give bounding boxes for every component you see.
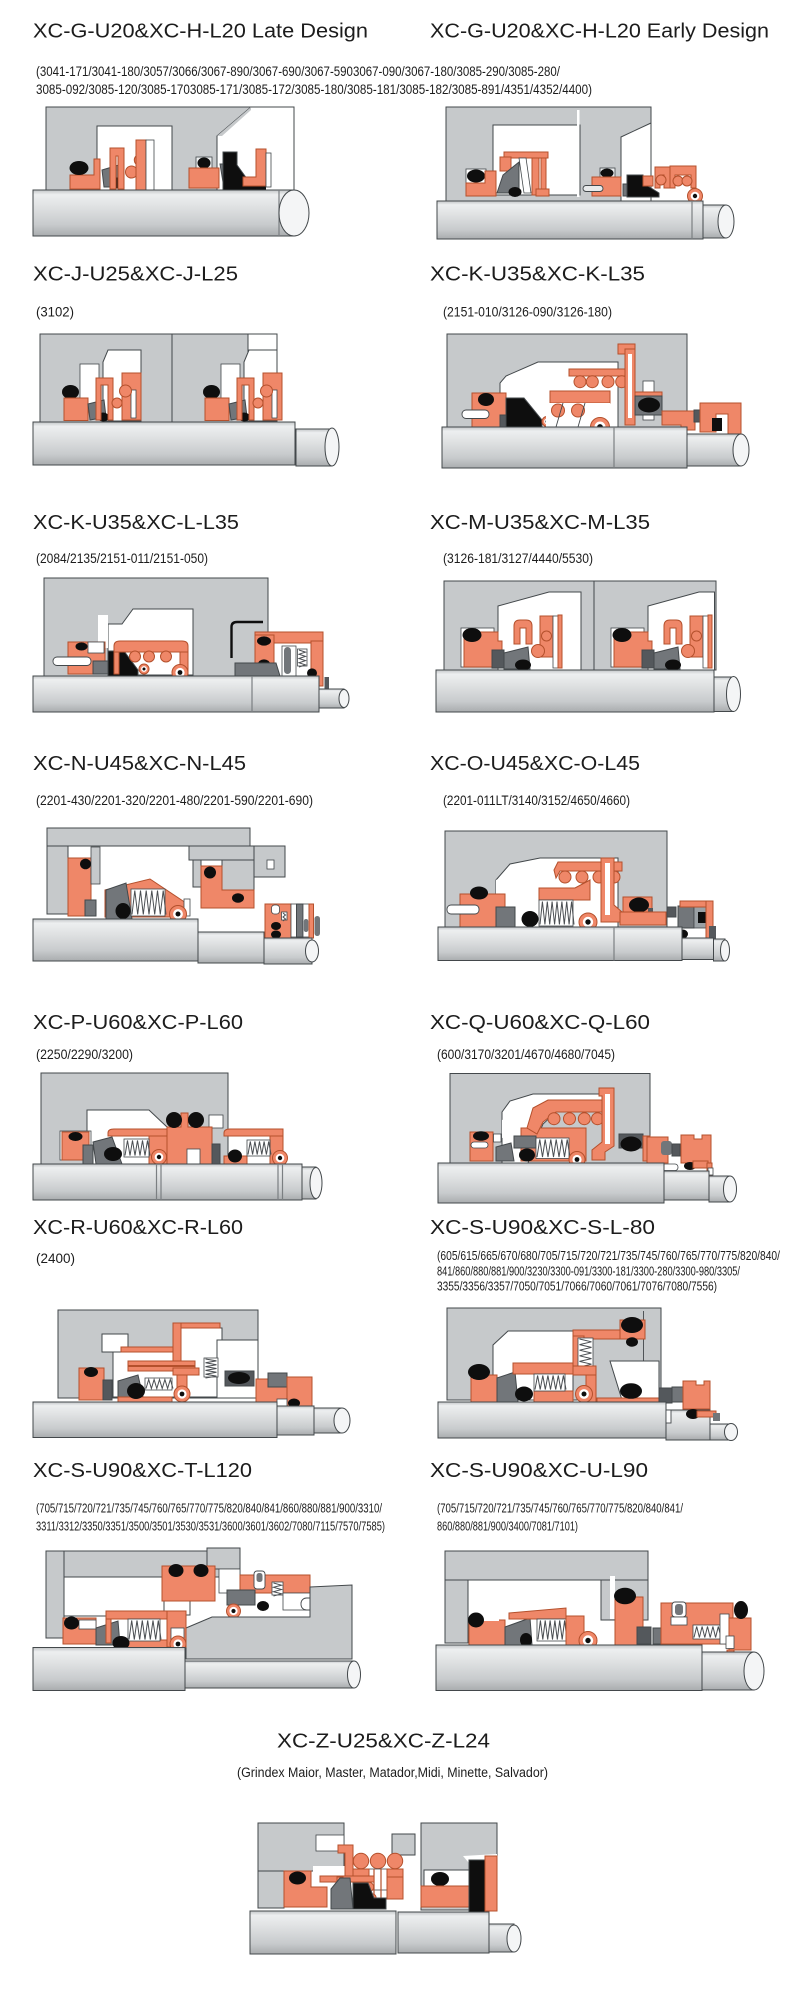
svg-text:3311/3312/3350/3351/3500/3501/: 3311/3312/3350/3351/3500/3501/3530/3531/…	[36, 1519, 385, 1534]
svg-text:XC-Q-U60&XC-Q-L60: XC-Q-U60&XC-Q-L60	[430, 1011, 650, 1034]
svg-text:(605/615/665/670/680/705/715/7: (605/615/665/670/680/705/715/720/721/735…	[437, 1248, 780, 1263]
svg-text:(3126-181/3127/4440/5530): (3126-181/3127/4440/5530)	[443, 551, 593, 566]
svg-text:XC-S-U90&XC-T-L120: XC-S-U90&XC-T-L120	[33, 1459, 252, 1482]
svg-text:XC-K-U35&XC-K-L35: XC-K-U35&XC-K-L35	[430, 263, 645, 286]
svg-text:(705/715/720/721/735/745/760/7: (705/715/720/721/735/745/760/765/770/775…	[437, 1501, 683, 1516]
svg-text:(2151-010/3126-090/3126-180): (2151-010/3126-090/3126-180)	[443, 305, 612, 320]
svg-text:(3041-171/3041-180/3057/3066/3: (3041-171/3041-180/3057/3066/3067-890/30…	[36, 64, 560, 79]
svg-text:XC-N-U45&XC-N-L45: XC-N-U45&XC-N-L45	[33, 752, 246, 775]
svg-text:(2250/2290/3200): (2250/2290/3200)	[36, 1047, 133, 1062]
svg-text:XC-Z-U25&XC-Z-L24: XC-Z-U25&XC-Z-L24	[277, 1730, 490, 1753]
svg-text:XC-K-U35&XC-L-L35: XC-K-U35&XC-L-L35	[33, 511, 239, 534]
svg-text:XC-G-U20&XC-H-L20 Late Design: XC-G-U20&XC-H-L20 Late Design	[33, 20, 368, 43]
svg-text:XC-P-U60&XC-P-L60: XC-P-U60&XC-P-L60	[33, 1011, 243, 1034]
svg-text:(2084/2135/2151-011/2151-050): (2084/2135/2151-011/2151-050)	[36, 551, 208, 566]
svg-text:(600/3170/3201/4670/4680/7045): (600/3170/3201/4670/4680/7045)	[437, 1047, 615, 1062]
svg-text:XC-O-U45&XC-O-L45: XC-O-U45&XC-O-L45	[430, 752, 640, 775]
svg-text:841/860/880/881/900/3230/3300-: 841/860/880/881/900/3230/3300-091/3300-1…	[437, 1263, 740, 1278]
svg-text:3355/3356/3357/7050/7051/7066/: 3355/3356/3357/7050/7051/7066/7060/7061/…	[437, 1278, 717, 1293]
svg-text:XC-S-U90&XC-U-L90: XC-S-U90&XC-U-L90	[430, 1459, 648, 1482]
svg-text:3085-092/3085-120/3085-1703085: 3085-092/3085-120/3085-1703085-171/3085-…	[36, 82, 592, 97]
svg-text:XC-G-U20&XC-H-L20 Early Design: XC-G-U20&XC-H-L20 Early Design	[430, 20, 769, 43]
svg-text:(2201-011LT/3140/3152/4650/466: (2201-011LT/3140/3152/4650/4660)	[443, 793, 630, 808]
svg-text:XC-S-U90&XC-S-L-80: XC-S-U90&XC-S-L-80	[430, 1216, 655, 1239]
svg-text:(2400): (2400)	[36, 1251, 75, 1266]
svg-text:(2201-430/2201-320/2201-480/22: (2201-430/2201-320/2201-480/2201-590/220…	[36, 793, 313, 808]
svg-text:860/880/881/900/3400/7081/7101: 860/880/881/900/3400/7081/7101)	[437, 1519, 578, 1534]
svg-text:(705/715/720/721/735/745/760/7: (705/715/720/721/735/745/760/765/770/775…	[36, 1501, 382, 1516]
svg-text:XC-R-U60&XC-R-L60: XC-R-U60&XC-R-L60	[33, 1216, 243, 1239]
svg-text:(3102): (3102)	[36, 305, 74, 320]
svg-text:XC-M-U35&XC-M-L35: XC-M-U35&XC-M-L35	[430, 511, 650, 534]
svg-text:(Grindex Maior, Master, Matad: (Grindex Maior, Master, Matador,Midi, Mi…	[237, 1765, 548, 1780]
svg-text:XC-J-U25&XC-J-L25: XC-J-U25&XC-J-L25	[33, 263, 238, 286]
